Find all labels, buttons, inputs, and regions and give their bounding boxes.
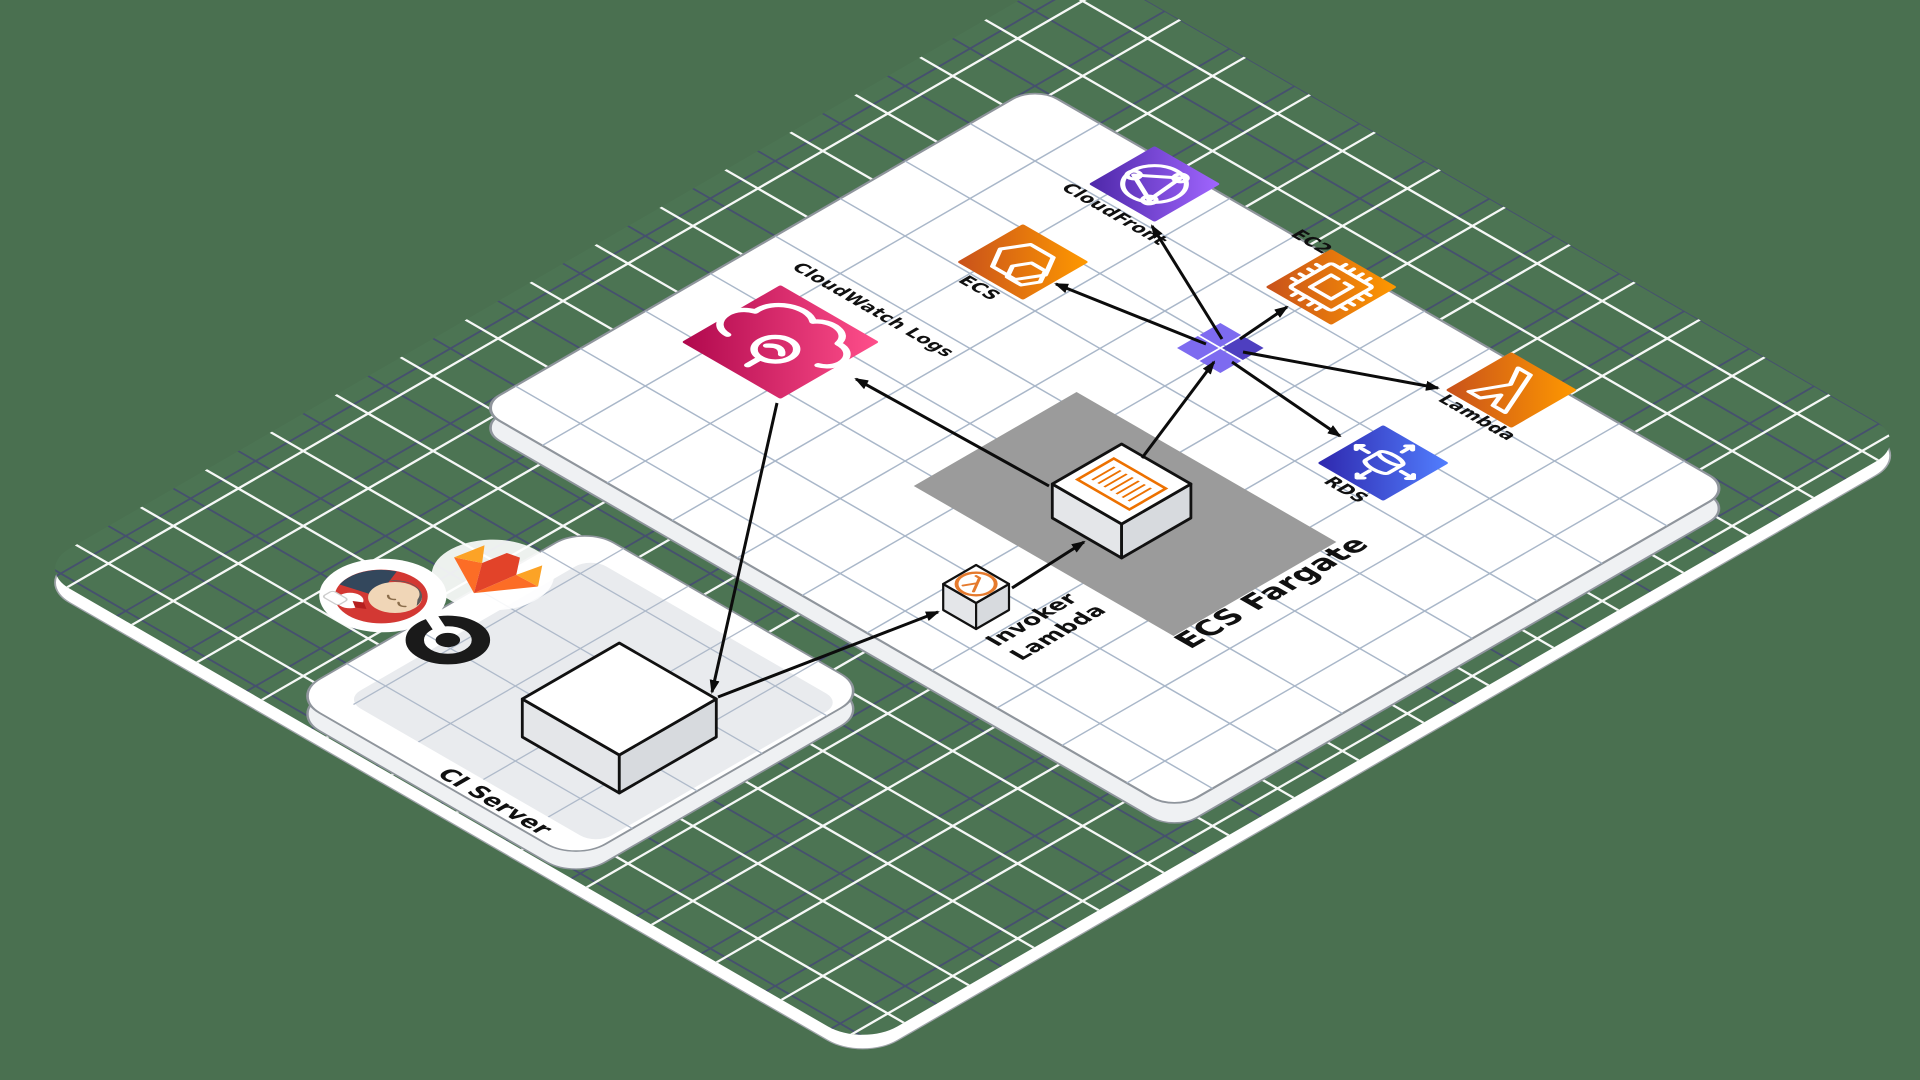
isometric-architecture-diagram: ECS FargateCI ServerCloudWatch LogsECSCl… [0, 0, 1920, 1080]
